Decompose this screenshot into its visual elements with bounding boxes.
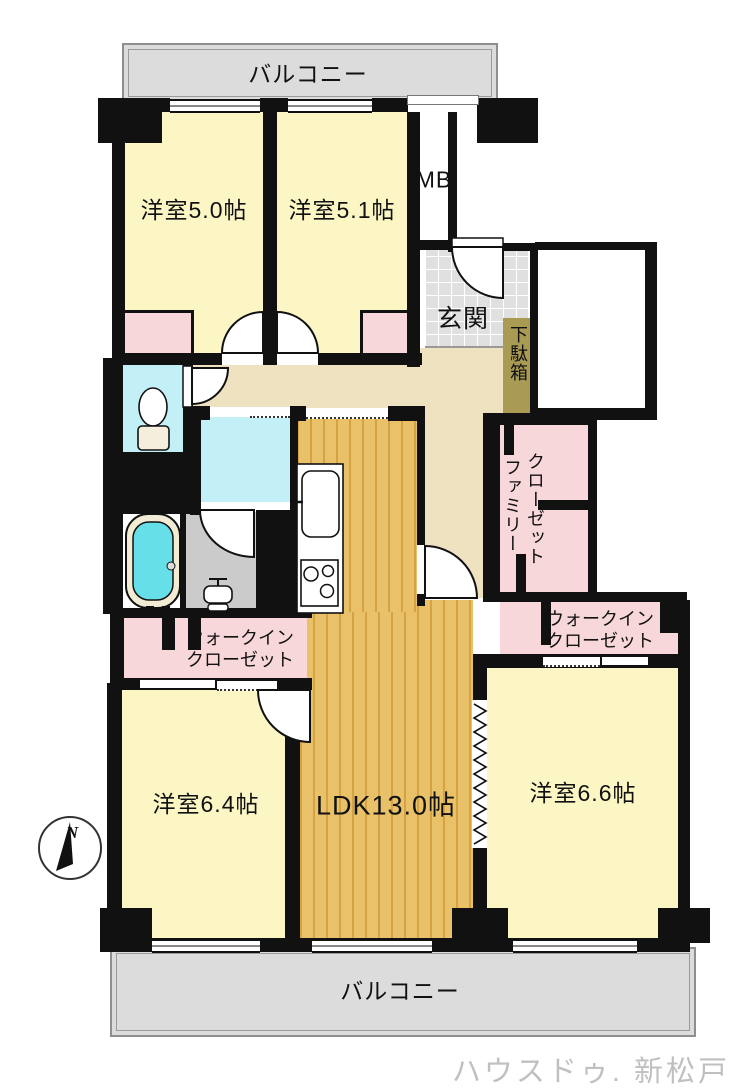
label-bedroom-5-1: 洋室5.1帖 <box>289 191 396 225</box>
toilet-door-leaf <box>183 366 192 407</box>
ldk-door-arc <box>425 546 477 598</box>
toilet-bowl <box>139 388 167 426</box>
label-meter-box: MB <box>416 167 453 194</box>
label-shoe-cabinet: 下駄箱 <box>505 325 531 382</box>
toilet-tank <box>138 426 169 450</box>
stove-burner <box>321 585 334 598</box>
kitchen-sink <box>302 471 339 537</box>
vanity-sink <box>204 586 232 603</box>
bathtub-faucet <box>162 606 170 615</box>
stove-burner <box>323 566 334 577</box>
label-balcony-top: バルコニー <box>248 55 368 89</box>
floor-plan: N バルコニー 洋室5.0帖 洋室5.1帖 MB 玄関 下駄箱 ファミリー クロ… <box>0 0 740 1090</box>
label-ldk: LDK13.0帖 <box>316 784 456 823</box>
label-balcony-bottom: バルコニー <box>340 972 460 1006</box>
powder-door-arc <box>200 510 254 557</box>
label-entrance: 玄関 <box>437 299 489 335</box>
toilet-door-arc <box>192 368 228 404</box>
label-wic-left: ウォークイン クローゼット <box>186 627 294 671</box>
plan-overlay: N <box>0 0 740 1090</box>
door-arc-bedroom-5-1 <box>277 312 318 353</box>
stove-burner <box>304 567 318 581</box>
entrance-door-leaf <box>452 238 503 247</box>
label-wic-right-line1: ウォークイン <box>546 609 654 629</box>
label-bedroom-6-6: 洋室6.6帖 <box>530 774 637 808</box>
door-arc-bedroom-6-4 <box>258 690 310 742</box>
bathtub-water <box>133 522 173 600</box>
label-wic-left-line2: クローゼット <box>186 650 294 670</box>
vanity-base <box>208 604 228 611</box>
label-wic-left-line1: ウォークイン <box>186 628 294 648</box>
label-bedroom-6-4: 洋室6.4帖 <box>153 785 260 819</box>
label-family-closet-line2: クローゼット <box>522 452 548 566</box>
accordion-door <box>474 704 486 844</box>
label-wic-right: ウォークイン クローゼット <box>546 608 654 652</box>
bathtub-drain <box>167 562 175 570</box>
bathtub-faucet <box>146 606 154 615</box>
compass-north-label: N <box>65 823 79 842</box>
watermark: ハウスドゥ. 新松戸 <box>430 1048 730 1090</box>
label-bedroom-5-0: 洋室5.0帖 <box>141 191 248 225</box>
label-wic-right-line2: クローゼット <box>546 631 654 651</box>
door-arc-bedroom-5-0 <box>222 312 263 353</box>
entrance-door-arc <box>452 247 503 298</box>
